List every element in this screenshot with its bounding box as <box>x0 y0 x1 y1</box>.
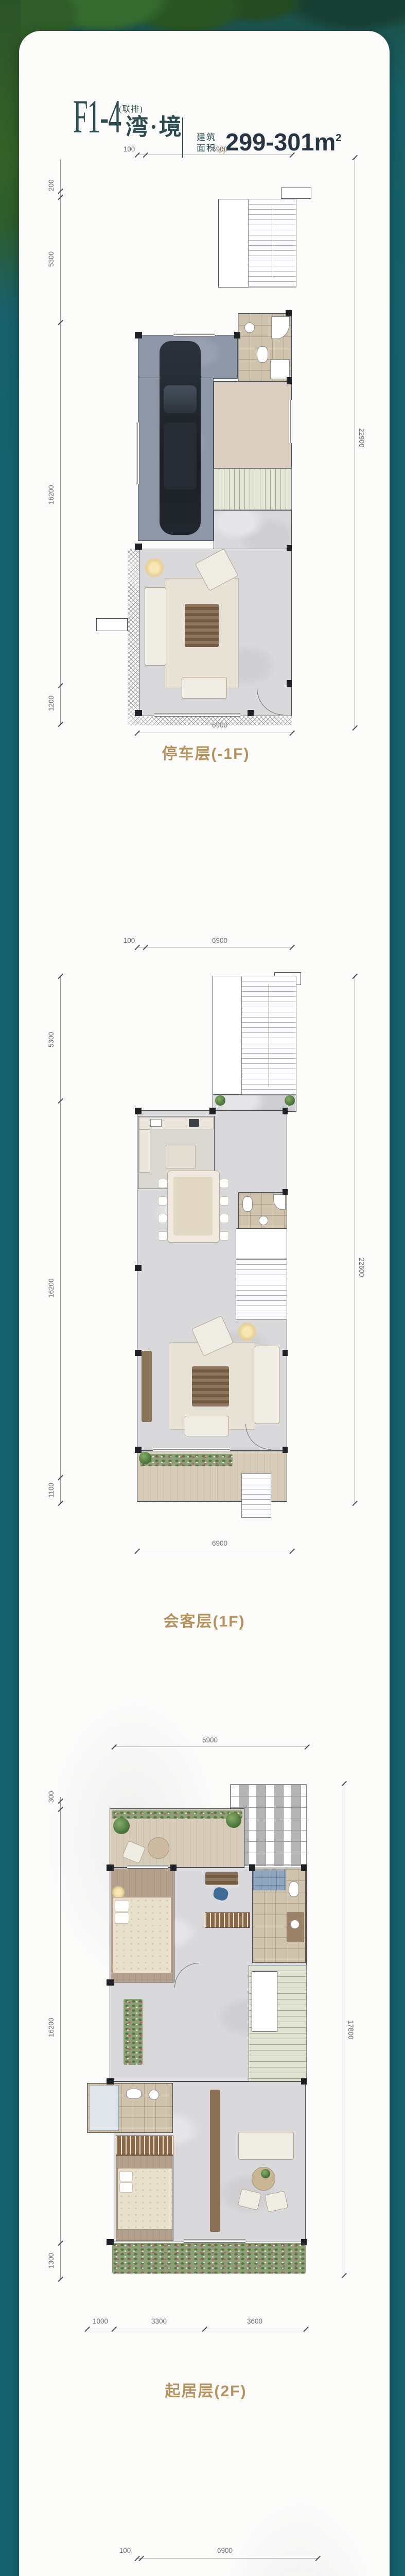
background-foliage-left <box>0 0 21 371</box>
wall-chunk <box>286 310 292 316</box>
wall-chunk <box>107 2239 114 2245</box>
chair <box>158 1214 167 1223</box>
paper-texture <box>215 2504 384 2576</box>
floorplan-sheet: F1-4 (联排) 湾·境 建筑 面积 约 299-301m2 100 6900 <box>19 31 390 2576</box>
sink <box>244 323 255 333</box>
wall-chunk <box>135 710 142 716</box>
window <box>184 2239 245 2243</box>
toilet <box>126 2089 142 2099</box>
plant <box>261 2169 270 2178</box>
dim-text: 6900 <box>204 1539 235 1547</box>
wall-chunk <box>283 1189 288 1195</box>
chair <box>220 1231 229 1241</box>
area-superscript: 2 <box>336 132 341 144</box>
wall-chunk <box>135 1447 142 1453</box>
loveseat <box>182 677 227 699</box>
wardrobe <box>205 1912 250 1928</box>
loveseat <box>185 1416 229 1436</box>
dim-line-left <box>60 1797 61 2279</box>
stove <box>189 1119 199 1127</box>
wall-chunk <box>301 1865 307 1871</box>
chair <box>220 1179 229 1188</box>
wall-chunk <box>135 1350 142 1356</box>
pillow <box>115 1900 129 1911</box>
dim-text: 100 <box>114 145 145 153</box>
window <box>136 422 139 484</box>
area-value-wrap: 299-301m2 <box>225 130 341 154</box>
dim-text: 3300 <box>144 2317 174 2325</box>
dining-table-top <box>173 1177 213 1235</box>
dim-line-top <box>137 155 292 155</box>
dim-text: 1100 <box>48 1469 55 1511</box>
plant <box>215 1095 225 1106</box>
round-rug <box>148 1837 169 1859</box>
stair-landing <box>213 976 242 1095</box>
sink <box>290 1920 300 1929</box>
stair-landing-mid <box>236 1228 287 1259</box>
toilet <box>242 1196 253 1212</box>
planter-box <box>124 1999 143 2065</box>
unit-code: F1-4 <box>73 93 121 140</box>
stairs-down <box>214 468 292 510</box>
wall-chunk <box>249 1865 255 1871</box>
dim-text: 6900 <box>204 145 235 153</box>
dim-text: 3600 <box>239 2317 270 2325</box>
dim-text: 6900 <box>209 2547 240 2554</box>
wall-chunk <box>283 1447 288 1453</box>
chair <box>158 1231 167 1241</box>
staircase <box>248 199 296 287</box>
floor-label: 停车层(-1F) <box>139 741 273 764</box>
dim-line-bottom <box>137 733 292 733</box>
dim-text: 5300 <box>48 239 55 280</box>
wall-chunk <box>170 1865 177 1871</box>
dim-text: 16200 <box>48 1267 55 1309</box>
garage-door <box>173 333 215 336</box>
wall-chunk <box>107 2078 114 2084</box>
wall-chunk <box>107 1979 114 1986</box>
dim-text: 22600 <box>358 1247 365 1288</box>
wall-chunk <box>107 1865 114 1871</box>
dim-line-top <box>114 1747 307 1747</box>
wall-chunk <box>135 1265 142 1271</box>
flower-strip <box>112 1810 242 1819</box>
wall-chunk <box>135 1108 142 1114</box>
dim-text: 200 <box>48 165 55 206</box>
wall-chunk <box>283 1350 288 1356</box>
wall-chunk <box>248 710 254 716</box>
stair-rail <box>269 984 269 1087</box>
dim-line-bottom <box>87 2329 306 2329</box>
sofa <box>255 1346 279 1424</box>
sofa <box>145 587 166 666</box>
dim-text: 300 <box>48 1776 55 1818</box>
area-value: 299-301m <box>225 128 336 156</box>
toilet <box>289 1882 299 1897</box>
coffee-table <box>185 604 219 647</box>
dim-text: 6900 <box>204 937 235 944</box>
ground-hatch <box>128 549 139 725</box>
cabinet-strip <box>210 2090 220 2232</box>
dim-line-right <box>344 1783 344 2275</box>
entry-steps <box>241 1473 271 1518</box>
chair <box>220 1214 229 1223</box>
shower-enclosure <box>89 2085 119 2131</box>
chair <box>220 1196 229 1206</box>
wall-chunk <box>287 545 292 551</box>
stair-rail <box>272 206 272 278</box>
wall-chunk <box>135 544 142 550</box>
desk <box>205 1872 238 1885</box>
dim-text: 17800 <box>347 2009 354 2050</box>
toilet <box>257 346 268 363</box>
wall-chunk <box>287 377 292 384</box>
dim-line-right <box>355 976 355 1503</box>
dim-text: 1000 <box>85 2317 116 2325</box>
dim-text: 6900 <box>195 1736 225 1744</box>
wall-chunk <box>135 332 142 338</box>
entry-step <box>96 618 128 631</box>
dim-text: 16200 <box>48 2007 55 2048</box>
dim-text: 5300 <box>48 1019 55 1060</box>
header-divider <box>182 117 183 158</box>
wall-chunk <box>301 2078 307 2084</box>
kitchen-counter-side <box>139 1129 150 1173</box>
dim-line-left <box>60 160 61 724</box>
plant <box>285 1095 295 1106</box>
storage-room <box>214 381 292 468</box>
car-roof <box>164 422 197 489</box>
dim-text: 100 <box>114 937 145 944</box>
roof-box <box>281 188 311 199</box>
kitchen-island <box>166 1145 196 1168</box>
wall-chunk <box>234 332 240 338</box>
wall-chunk <box>287 680 292 687</box>
pillow <box>119 2171 133 2181</box>
window <box>153 1448 230 1451</box>
sink <box>149 2090 159 2100</box>
floor-label: 会客层(1F) <box>137 1608 271 1631</box>
plant <box>139 1452 151 1464</box>
wall-chunk <box>283 1108 288 1114</box>
dim-text: 100 <box>110 2547 140 2554</box>
dim-text: 16200 <box>48 474 55 515</box>
wall-chunk <box>209 1108 216 1114</box>
unit-tag: (联排) <box>119 102 143 114</box>
dim-line-left <box>60 976 61 1503</box>
closet <box>116 2136 173 2155</box>
window <box>289 400 292 443</box>
dim-text: 1200 <box>48 683 55 724</box>
stair-landing <box>218 199 249 287</box>
kitchen-sink <box>150 1119 162 1127</box>
dim-line-top <box>137 947 292 947</box>
window <box>154 713 240 717</box>
page: F1-4 (联排) 湾·境 建筑 面积 约 299-301m2 100 6900 <box>0 0 405 2576</box>
flower-bed <box>140 1454 233 1466</box>
dim-text: 22900 <box>358 417 365 459</box>
sofa <box>238 2132 294 2160</box>
plant <box>113 1818 130 1834</box>
dim-line-bottom <box>137 1551 292 1551</box>
floor-lamp <box>237 1322 257 1342</box>
sink <box>259 1216 268 1225</box>
wall-chunk <box>301 2239 307 2245</box>
plant <box>226 1812 241 1828</box>
car-windshield <box>164 385 197 413</box>
hall <box>214 510 292 550</box>
dim-line-top <box>137 2558 318 2558</box>
pillow <box>119 2182 133 2193</box>
shower-tile <box>253 1870 286 1890</box>
tv-cabinet <box>142 1351 152 1422</box>
staircase-mid <box>236 1259 287 1320</box>
dim-line-right <box>355 157 355 727</box>
chair <box>158 1196 167 1206</box>
area-label-line1: 建筑 <box>197 132 216 143</box>
window <box>127 1865 168 1869</box>
coffee-table <box>192 1366 229 1406</box>
ground-hatch <box>139 716 292 725</box>
dim-text: 1300 <box>48 2240 55 2281</box>
chair <box>158 1179 167 1188</box>
washer <box>270 360 290 379</box>
unit-name: 湾·境 <box>126 115 183 139</box>
header: F1-4 (联排) 湾·境 建筑 面积 约 299-301m2 <box>19 31 390 196</box>
flower-bed <box>112 2243 306 2274</box>
floor-lamp <box>144 557 165 578</box>
floor-label: 起居层(2F) <box>139 2378 273 2401</box>
stair-void <box>252 1971 277 2032</box>
pillow <box>115 1912 129 1924</box>
